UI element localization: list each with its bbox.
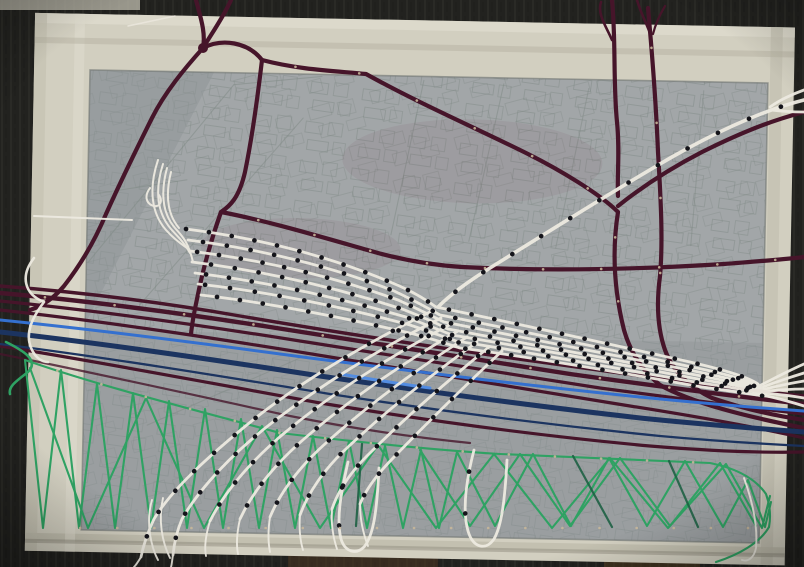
string-art-map-photo [0,0,804,567]
string-art-canvas [0,0,804,567]
photo-vignette [0,0,804,567]
